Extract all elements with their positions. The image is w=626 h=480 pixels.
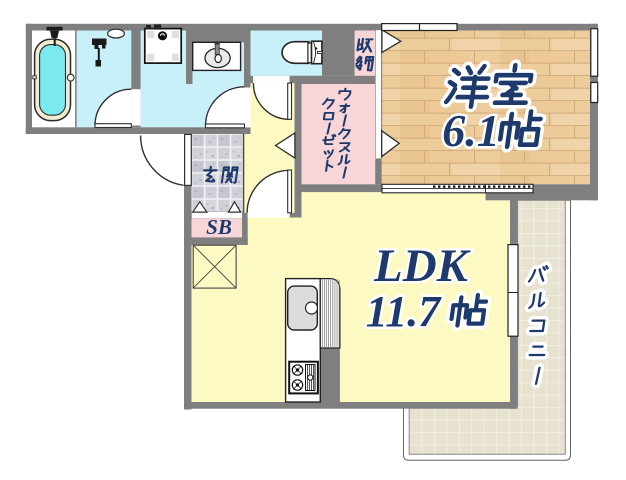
- svg-text:6.1: 6.1: [442, 105, 500, 156]
- svg-text:LDK: LDK: [373, 240, 471, 292]
- svg-text:11.7: 11.7: [366, 287, 443, 336]
- svg-text:SB: SB: [206, 215, 232, 239]
